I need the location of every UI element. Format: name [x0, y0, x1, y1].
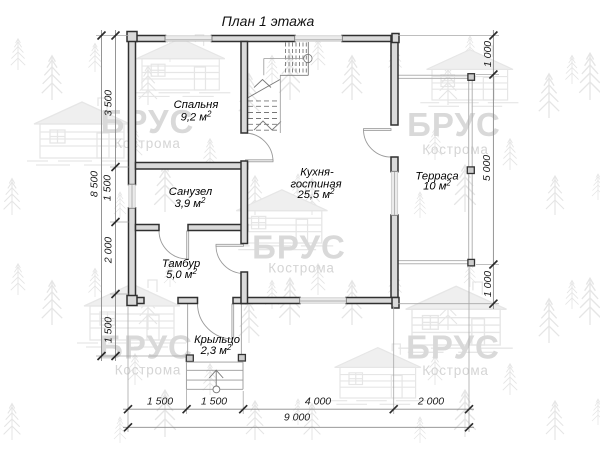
svg-text:Санузел: Санузел	[169, 186, 213, 198]
svg-text:БРУС: БРУС	[406, 329, 500, 366]
svg-text:Спальня: Спальня	[174, 99, 219, 111]
svg-text:1 000: 1 000	[482, 271, 494, 297]
svg-text:4 000: 4 000	[305, 396, 331, 408]
svg-text:1 000: 1 000	[482, 41, 494, 67]
svg-text:2 000: 2 000	[103, 237, 115, 264]
svg-text:5 000: 5 000	[481, 155, 493, 181]
svg-text:План 1 этажа: План 1 этажа	[222, 13, 315, 29]
svg-text:2 000: 2 000	[417, 396, 444, 408]
svg-text:8 500: 8 500	[89, 171, 101, 197]
svg-text:Кострома: Кострома	[422, 363, 489, 378]
svg-text:1 500: 1 500	[103, 317, 115, 343]
svg-text:Кухня-: Кухня-	[300, 167, 334, 179]
svg-text:Кострома: Кострома	[422, 142, 489, 157]
svg-text:Кострома: Кострома	[114, 136, 181, 151]
svg-text:1 500: 1 500	[201, 396, 227, 408]
svg-text:Кострома: Кострома	[115, 363, 182, 378]
svg-text:1 500: 1 500	[102, 175, 114, 201]
svg-text:3 500: 3 500	[103, 90, 115, 116]
svg-text:БРУС: БРУС	[407, 106, 501, 143]
svg-text:1 500: 1 500	[147, 396, 173, 408]
svg-text:9 000: 9 000	[284, 412, 310, 424]
svg-text:Кострома: Кострома	[268, 261, 335, 276]
svg-text:25,5 м2: 25,5 м2	[296, 187, 335, 201]
